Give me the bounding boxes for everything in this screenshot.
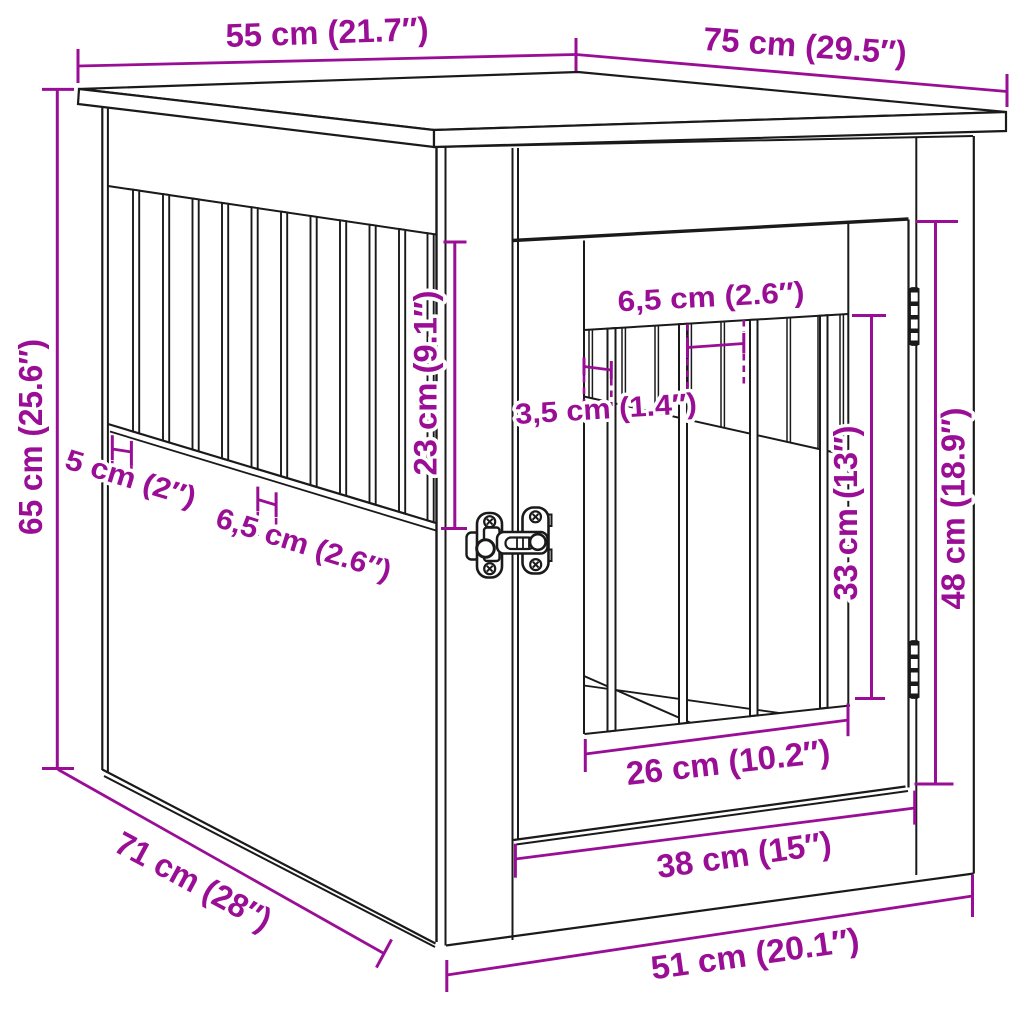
svg-text:23 cm (9.1″): 23 cm (9.1″) — [408, 291, 444, 476]
svg-text:33 cm (13″): 33 cm (13″) — [827, 426, 864, 601]
svg-text:48 cm (18.9″): 48 cm (18.9″) — [935, 408, 972, 610]
svg-text:65 cm (25.6″): 65 cm (25.6″) — [12, 339, 49, 535]
svg-text:55 cm (21.7″): 55 cm (21.7″) — [225, 10, 429, 54]
